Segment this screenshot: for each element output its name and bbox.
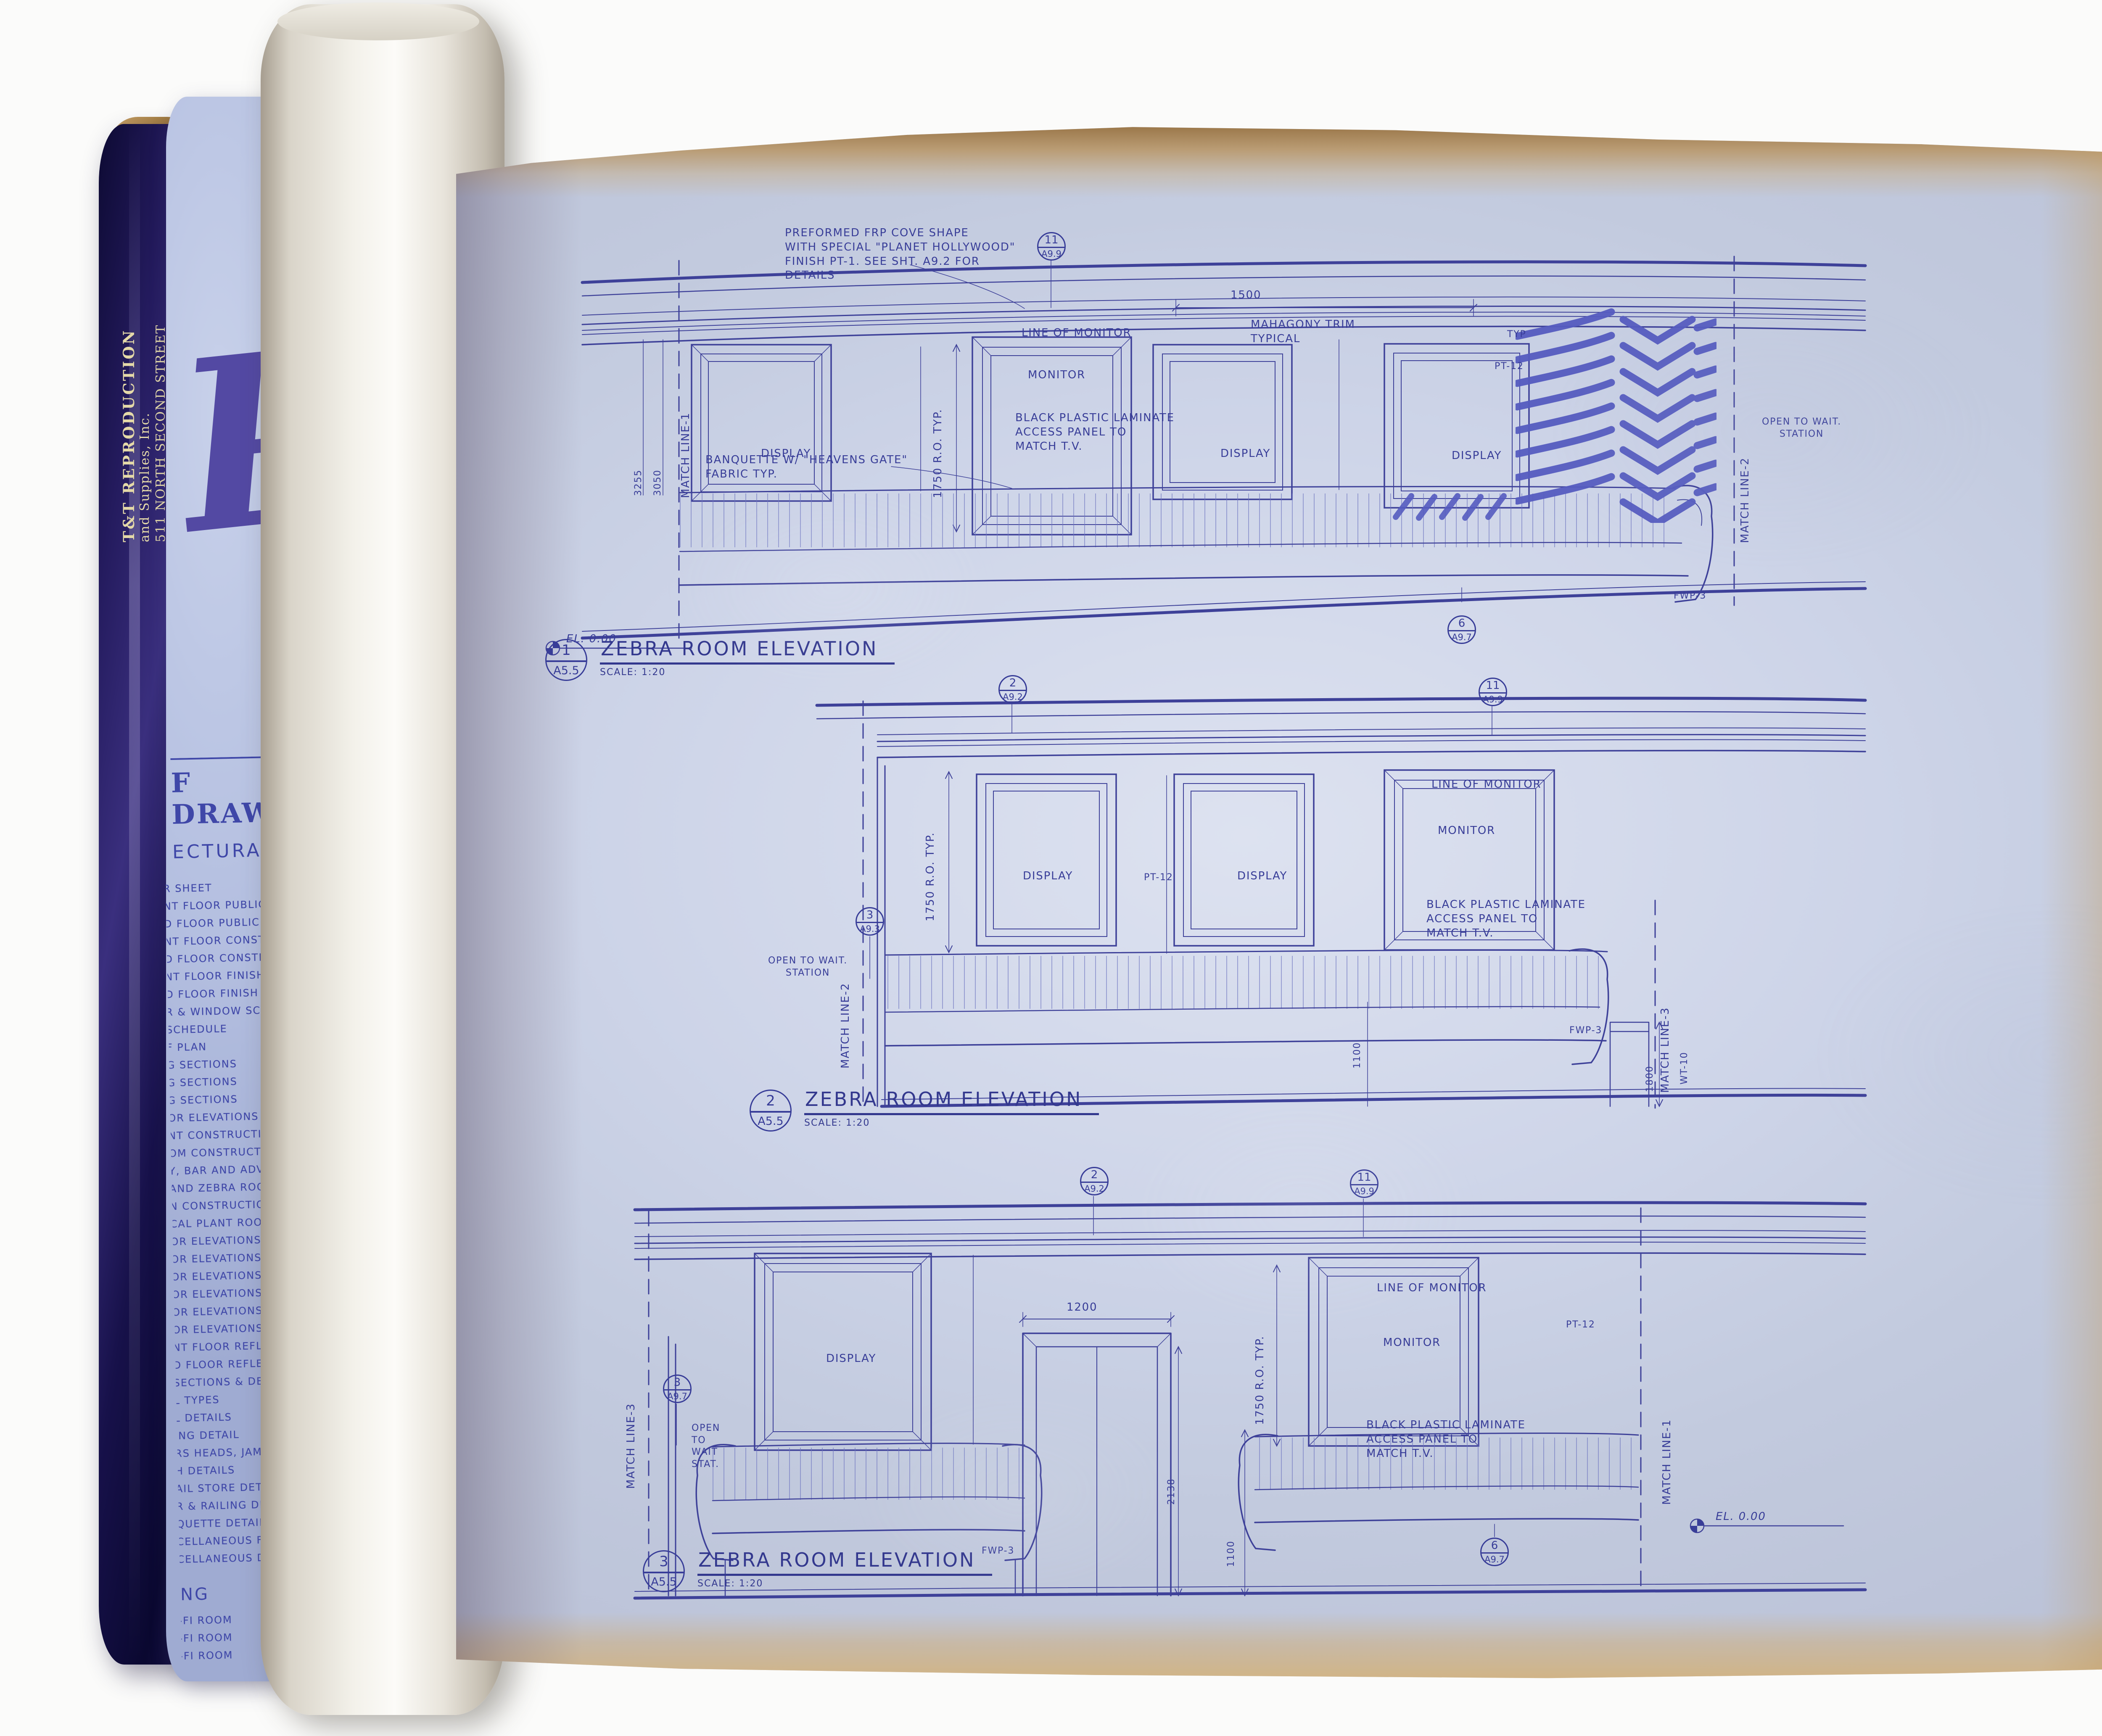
tube-label-line: T&T REPRODUCTION [121,325,137,542]
label-access-panel: BLACK PLASTIC LAMINATE ACCESS PANEL TO M… [1366,1418,1526,1461]
label-access-panel: BLACK PLASTIC LAMINATE ACCESS PANEL TO M… [1015,411,1175,454]
label-fwp3: FWP-3 [1569,1025,1602,1037]
detail-bubble: 2A9.2 [998,675,1027,704]
detail-bubble: 6A9.7 [1480,1538,1509,1566]
bubble-sheet: A9.9 [1038,248,1064,260]
dim-3255: 3255 [633,470,645,496]
bubble-number: 3 [644,1551,684,1573]
label-open-to-wait: OPEN TO WAIT. STATION [768,955,848,979]
bubble-number: 6 [1481,1539,1508,1554]
bubble-sheet: A9.9 [1351,1185,1377,1197]
label-line-of-monitor: LINE OF MONITOR [1431,778,1541,792]
match-line-3-label: MATCH LINE-3 [1658,1007,1673,1093]
dim-2138: 2138 [1166,1478,1178,1505]
bubble-sheet: A9.3 [857,923,883,935]
title-scale: SCALE: 1:20 [697,1578,992,1589]
bubble-number: 11 [1351,1171,1377,1185]
elevation-2-title: 2A5.5 ZEBRA ROOM ELEVATIONSCALE: 1:20 [750,1088,1099,1128]
label-wt10: WT-10 [1679,1052,1691,1084]
label-open-to-wait: OPEN TO WAIT. STATION [1762,416,1841,440]
label-display: DISPLAY [1220,447,1270,461]
label-pt12: PT-12 [1566,1319,1595,1331]
label-typ: TYP [1507,329,1526,341]
detail-bubble: 6A9.7 [1447,615,1476,644]
bubble-sheet: A9.2 [1081,1183,1107,1195]
label-open-to-wait-stat: OPEN TO WAIT STAT. [692,1422,720,1470]
bubble-number: 3 [664,1376,690,1390]
title-bubble: 1A5.5 [545,639,587,681]
title-text: ZEBRA ROOM ELEVATION [697,1549,992,1576]
label-monitor: MONITOR [1383,1336,1441,1350]
label-fwp3: FWP-3 [1674,590,1706,602]
bubble-number: 6 [1449,617,1475,631]
detail-bubble: 11A9.9 [1350,1169,1378,1198]
dim-1500: 1500 [1231,288,1261,303]
label-display: DISPLAY [826,1352,876,1366]
match-line-1-label: MATCH LINE-1 [679,412,693,498]
label-pt12: PT-12 [1144,872,1173,884]
tube-label-line: and Supplies, Inc. [137,325,153,542]
label-pt12: PT-12 [1495,361,1524,373]
label-display: DISPLAY [1452,449,1502,463]
elevation-1-title: 1A5.5 ZEBRA ROOM ELEVATIONSCALE: 1:20 [545,637,895,678]
title-scale: SCALE: 1:20 [600,667,895,678]
bubble-number: 11 [1480,679,1506,694]
label-display: DISPLAY [1023,869,1073,884]
label-line-of-monitor: LINE OF MONITOR [1022,326,1131,340]
dim-3050: 3050 [652,470,664,496]
detail-bubble: 2A9.2 [1080,1167,1109,1195]
label-access-panel: BLACK PLASTIC LAMINATE ACCESS PANEL TO M… [1426,898,1586,940]
label-display: DISPLAY [1237,869,1287,884]
match-line-1-label: MATCH LINE-1 [1660,1419,1674,1505]
bubble-number: 1 [547,640,586,662]
match-line-2-label: MATCH LINE-2 [1738,457,1753,543]
label-line-of-monitor: LINE OF MONITOR [1377,1281,1487,1295]
title-text: ZEBRA ROOM ELEVATION [804,1088,1099,1115]
bubble-sheet: A9.7 [1481,1554,1508,1565]
note-cove: PREFORMED FRP COVE SHAPE WITH SPECIAL "P… [785,226,1015,283]
label-monitor: MONITOR [1028,368,1085,383]
label-display: DISPLAY [761,447,811,461]
dim-1100: 1100 [1352,1042,1364,1069]
title-scale: SCALE: 1:20 [804,1118,1099,1128]
dim-1100: 1100 [1225,1541,1238,1567]
label-monitor: MONITOR [1438,824,1495,838]
elevation-3-title: 3A5.5 ZEBRA ROOM ELEVATIONSCALE: 1:20 [643,1549,992,1589]
dim-1750-ro: 1750 R.O. TYP. [931,409,945,498]
detail-bubble: 3A9.3 [856,907,884,936]
title-bubble: 2A5.5 [750,1090,792,1132]
bubble-number: 11 [1038,233,1064,248]
bubble-number: 2 [1081,1168,1107,1183]
title-text: ZEBRA ROOM ELEVATION [600,637,895,665]
dim-1750-ro: 1750 R.O. TYP. [924,832,938,921]
bubble-sheet: A9.7 [664,1390,690,1402]
bubble-sheet: A5.5 [644,1573,684,1591]
bubble-number: 3 [857,908,883,923]
dim-1200: 1200 [1067,1301,1097,1315]
bubble-number: 2 [1000,676,1026,691]
bubble-number: 2 [751,1091,790,1113]
match-line-3-label: MATCH LINE-3 [624,1403,639,1489]
bubble-sheet: A5.5 [751,1113,790,1130]
dim-1800: 1800 [1644,1066,1656,1092]
detail-bubble: 11A9.9 [1479,678,1507,706]
match-line-2-label: MATCH LINE-2 [839,983,853,1069]
detail-bubble: 3A9.7 [663,1375,692,1403]
note-trim: MAHAGONY TRIM TYPICAL [1251,318,1355,346]
blueprint-sheet: PREFORMED FRP COVE SHAPE WITH SPECIAL "P… [456,118,2102,1680]
bubble-sheet: A9.9 [1480,694,1506,705]
dim-1750-ro: 1750 R.O. TYP. [1253,1335,1268,1425]
datum-label: EL. 0.00 [1716,1510,1766,1524]
bubble-sheet: A9.2 [1000,691,1026,703]
photo-of-blueprint: { "scene": { "tube_label_lines": ["T&T R… [0,0,2102,1736]
bubble-sheet: A5.5 [547,662,586,680]
bubble-sheet: A9.7 [1449,631,1475,643]
title-bubble: 3A5.5 [643,1550,685,1592]
detail-bubble: 11A9.9 [1037,232,1066,261]
